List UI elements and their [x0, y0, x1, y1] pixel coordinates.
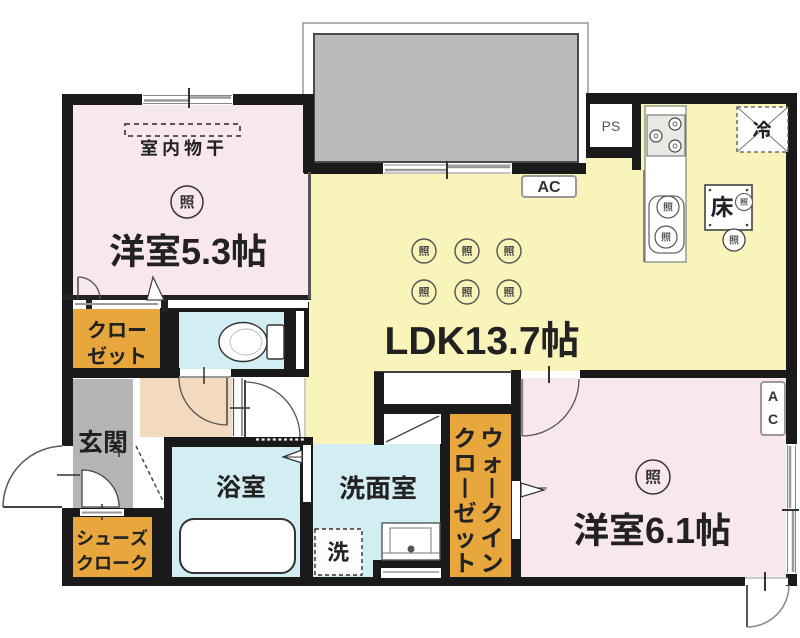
svg-text:PS: PS — [602, 118, 621, 134]
svg-text:C: C — [768, 411, 778, 427]
svg-text:6.1: 6.1 — [645, 510, 695, 551]
svg-text:5.3: 5.3 — [181, 231, 231, 272]
svg-text:AC: AC — [537, 179, 561, 196]
svg-text:A: A — [768, 388, 778, 404]
svg-text:LDK13.7: LDK13.7 — [385, 320, 541, 363]
